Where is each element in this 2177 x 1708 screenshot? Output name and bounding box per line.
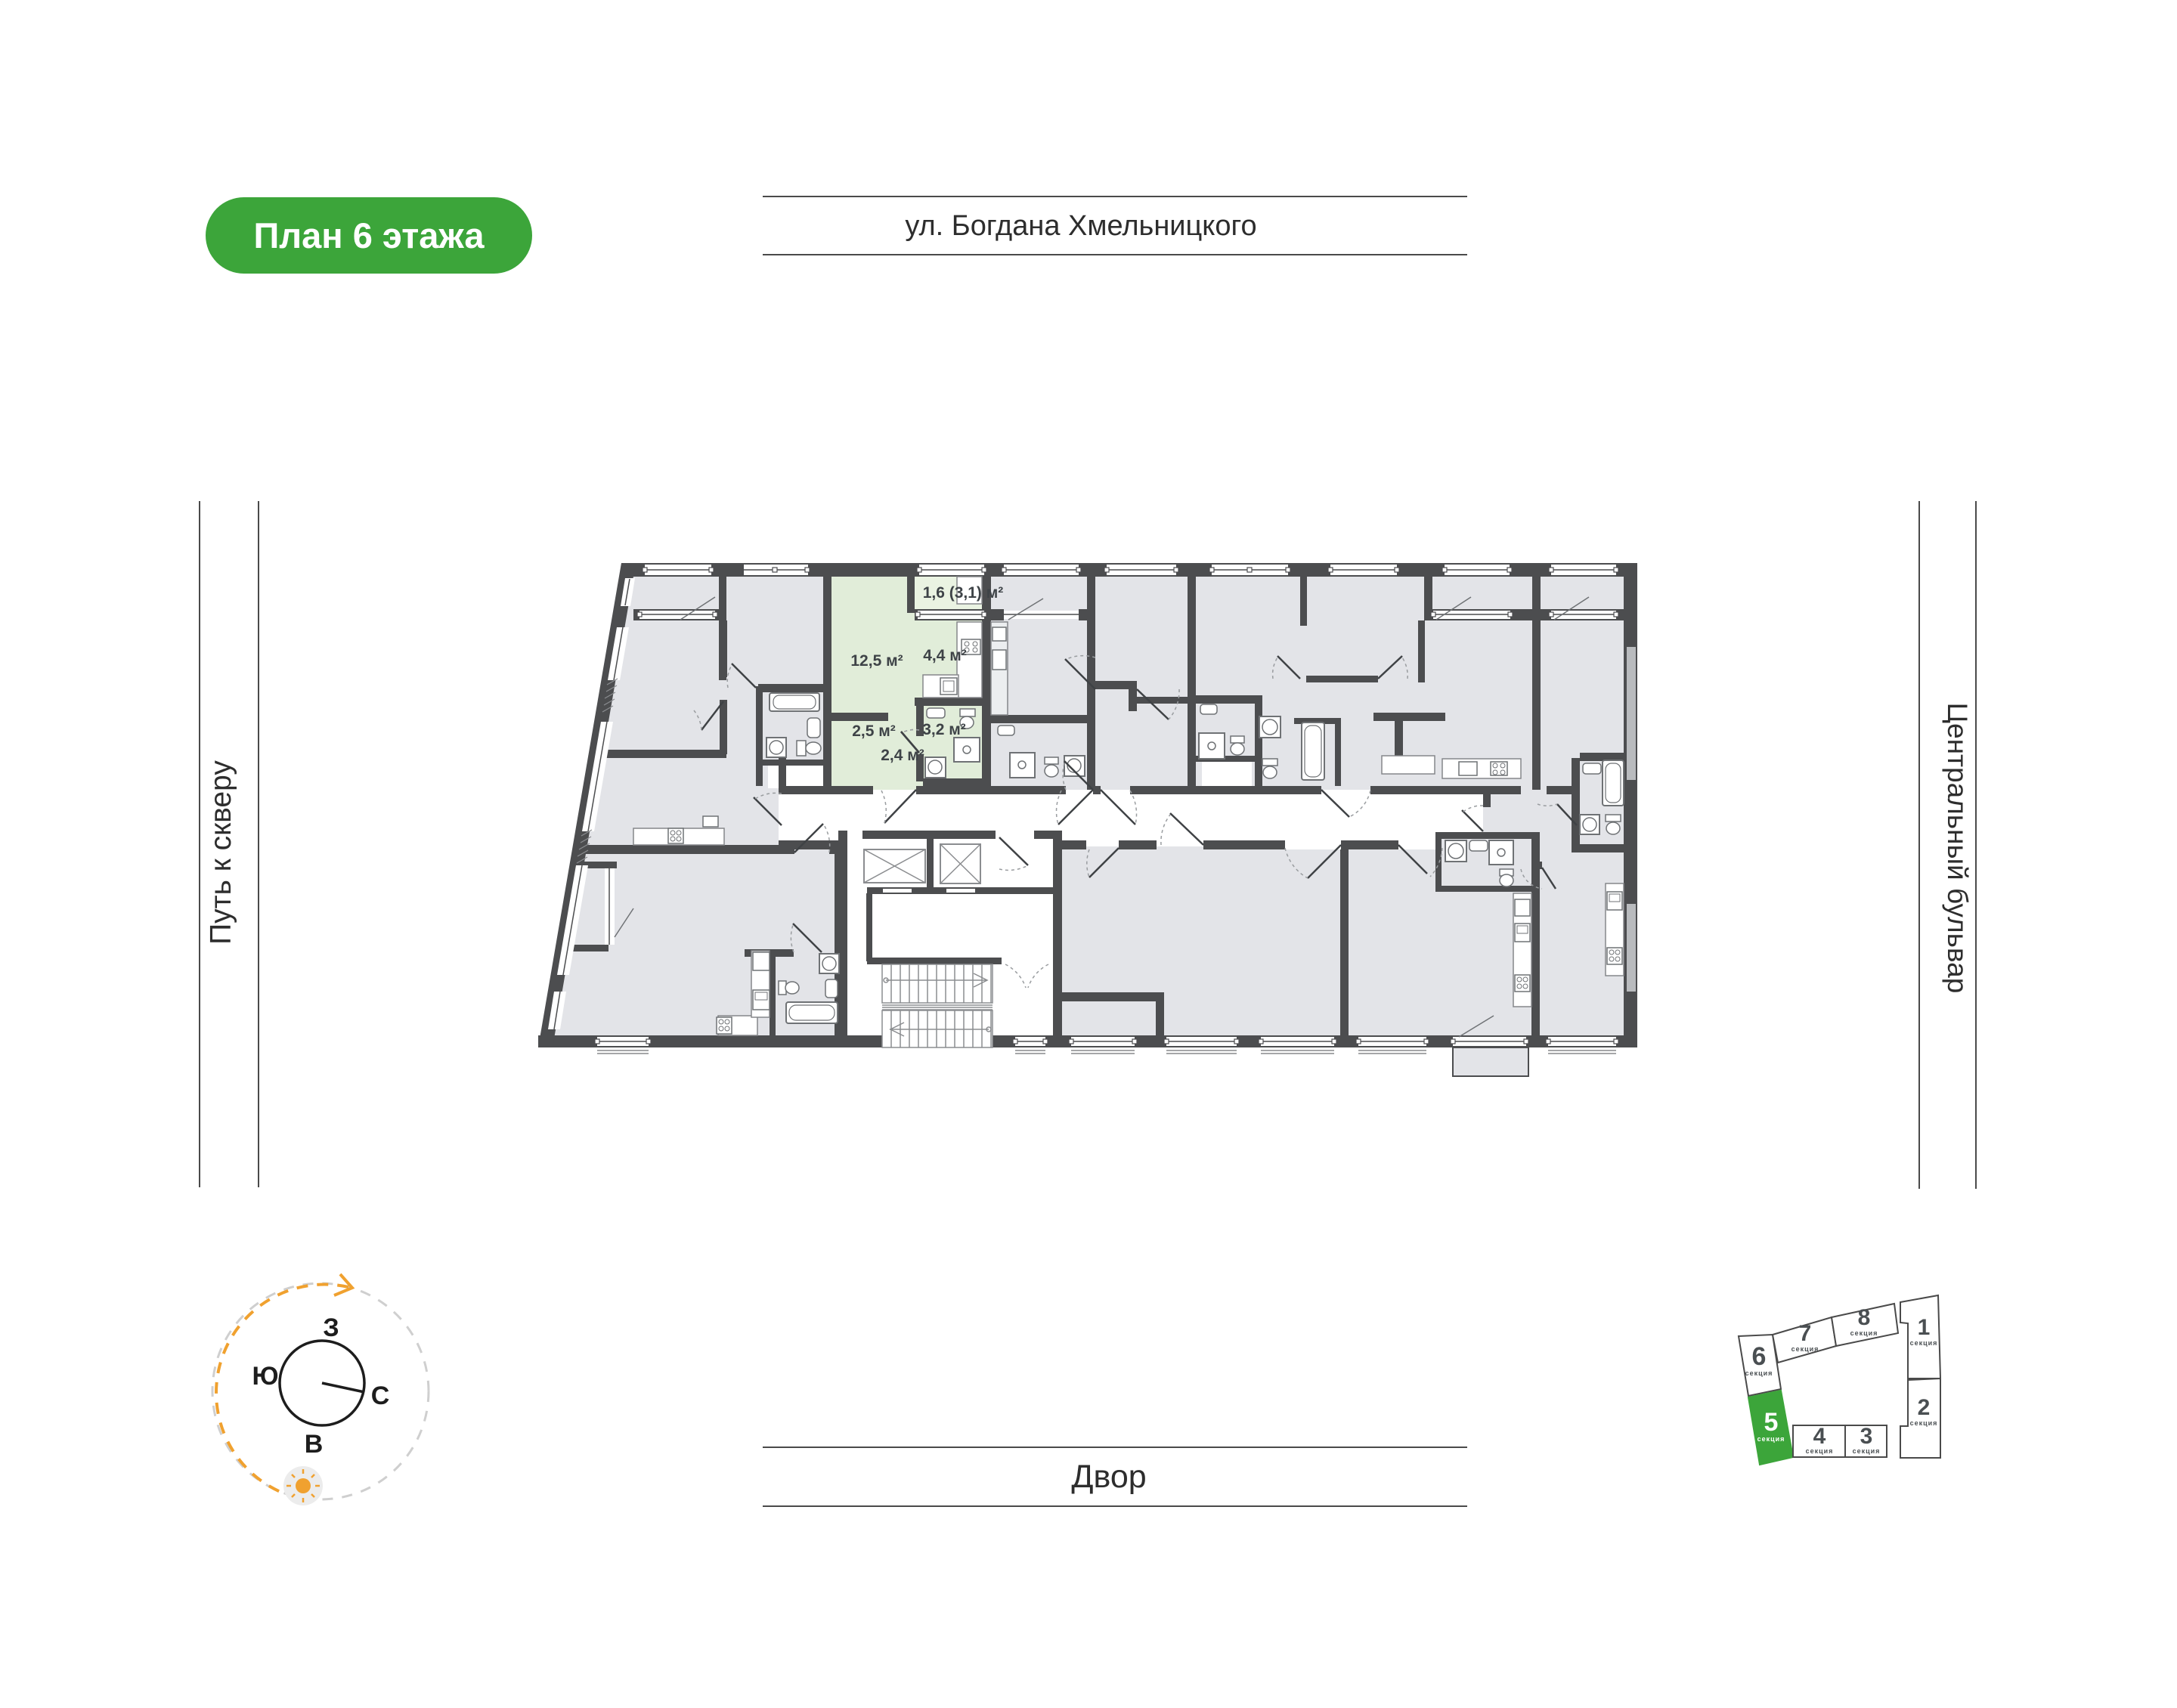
svg-text:План 6 этажа: План 6 этажа (254, 215, 485, 255)
svg-text:1,6 (3,1) м²: 1,6 (3,1) м² (923, 584, 1004, 602)
svg-text:ул. Богдана Хмельницкого: ул. Богдана Хмельницкого (905, 210, 1256, 242)
svg-text:секция: секция (1757, 1435, 1785, 1443)
svg-text:Ю: Ю (252, 1362, 278, 1391)
svg-text:секция: секция (1745, 1369, 1773, 1377)
svg-text:2: 2 (1918, 1395, 1931, 1420)
svg-text:секция: секция (1853, 1447, 1881, 1455)
svg-text:Двор: Двор (1071, 1459, 1146, 1495)
svg-text:секция: секция (1791, 1345, 1819, 1353)
svg-text:секция: секция (1850, 1329, 1878, 1337)
svg-text:8: 8 (1858, 1305, 1871, 1330)
svg-text:З: З (323, 1313, 339, 1342)
svg-text:6: 6 (1752, 1342, 1767, 1371)
svg-text:4: 4 (1813, 1424, 1826, 1449)
svg-text:Путь к скверу: Путь к скверу (205, 760, 237, 945)
svg-text:секция: секция (1806, 1447, 1834, 1455)
svg-text:4,4 м²: 4,4 м² (923, 647, 967, 664)
svg-text:1: 1 (1918, 1315, 1931, 1340)
svg-text:2,4 м²: 2,4 м² (881, 747, 924, 764)
svg-text:секция: секция (1910, 1419, 1938, 1427)
svg-text:3,2 м²: 3,2 м² (922, 721, 966, 738)
svg-text:7: 7 (1799, 1321, 1812, 1346)
svg-text:Центральный бульвар: Центральный бульвар (1942, 703, 1973, 994)
svg-text:5: 5 (1764, 1408, 1779, 1437)
svg-text:3: 3 (1860, 1424, 1873, 1449)
svg-text:2,5 м²: 2,5 м² (852, 722, 896, 740)
svg-text:секция: секция (1910, 1339, 1938, 1347)
svg-text:12,5 м²: 12,5 м² (850, 652, 903, 670)
svg-text:В: В (305, 1430, 324, 1459)
svg-text:С: С (371, 1382, 390, 1410)
